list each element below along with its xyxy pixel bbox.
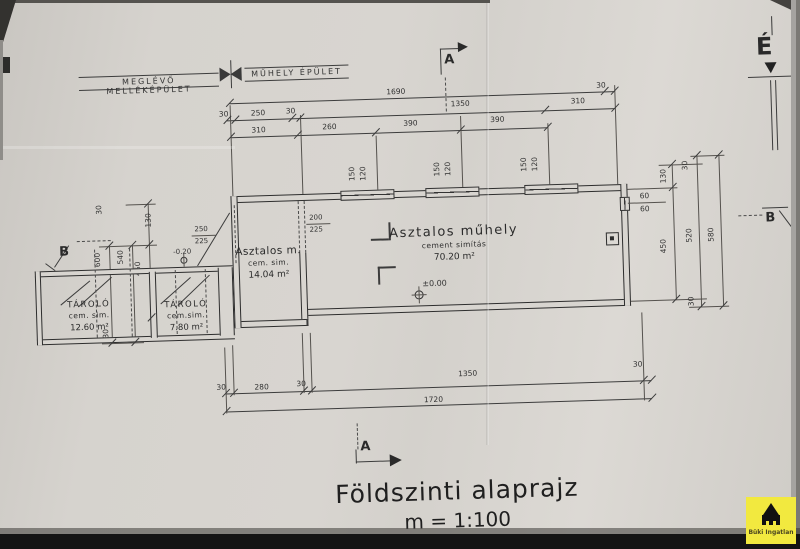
label-workshop-building: MŰHELY ÉPÜLET bbox=[245, 67, 347, 79]
ext-line bbox=[641, 312, 645, 400]
window-dim: 120 bbox=[358, 163, 368, 183]
paper-crease bbox=[0, 146, 235, 149]
level-marker-icon bbox=[412, 294, 427, 296]
break-symbol-icon bbox=[219, 67, 230, 81]
photo-edge bbox=[0, 0, 490, 3]
room-finish: cem.sim. bbox=[149, 310, 223, 321]
dim: 280 bbox=[254, 382, 269, 391]
window-dim: 150 bbox=[347, 164, 357, 184]
north-base-line bbox=[748, 76, 794, 79]
room-area: 12.60 m² bbox=[43, 321, 135, 334]
dim-line bbox=[230, 91, 615, 104]
dim: 1350 bbox=[451, 99, 470, 109]
wall-bottom-workshop bbox=[306, 299, 631, 316]
ext-line bbox=[376, 136, 379, 193]
window-dim: 120 bbox=[443, 159, 453, 179]
window-dim: 150 bbox=[432, 159, 442, 179]
door-dim: 225 bbox=[195, 237, 209, 245]
section-marker-a-top: A bbox=[444, 52, 455, 67]
room-carpenter: Asztalos m. cem. sim. 14.04 m² bbox=[230, 244, 307, 281]
room-area: 70.20 m² bbox=[369, 250, 539, 265]
dim: 540 bbox=[115, 245, 125, 269]
room-workshop: Asztalos műhely cement simítás 70.20 m² bbox=[368, 222, 539, 265]
dim-total-length: 1690 bbox=[386, 87, 405, 97]
window-dim: 120 bbox=[530, 154, 540, 174]
ext-line bbox=[232, 345, 235, 395]
logo-house-arrow-icon bbox=[762, 515, 780, 525]
north-double-line bbox=[770, 80, 773, 150]
ext-line bbox=[230, 105, 234, 197]
room-finish: cem. sim. bbox=[230, 257, 306, 268]
paper-crease bbox=[486, 0, 489, 445]
room-storage1: TÁROLÓ cem. sim. 12.60 m² bbox=[43, 298, 136, 334]
section-marker-b-right: B bbox=[765, 210, 775, 225]
dim: 130 bbox=[658, 164, 668, 188]
window-dim: 150 bbox=[519, 154, 529, 174]
north-letter: É bbox=[756, 32, 773, 61]
dim: 260 bbox=[322, 122, 337, 131]
dim: 310 bbox=[570, 96, 585, 105]
section-b-axis bbox=[77, 240, 111, 242]
ext-line bbox=[614, 85, 618, 184]
dim: 30 bbox=[680, 153, 690, 177]
label-existing-building: MEGLÉVŐ MELLÉKÉPÜLET bbox=[80, 75, 218, 97]
room-name: Asztalos m. bbox=[230, 244, 306, 258]
break-symbol-icon bbox=[230, 67, 241, 81]
dim: 250 bbox=[251, 108, 266, 117]
dim: 130 bbox=[143, 208, 153, 232]
drawing-title: Földszinti alaprajz bbox=[316, 472, 597, 510]
dim-line bbox=[231, 127, 548, 138]
window bbox=[340, 189, 394, 201]
dim: 30 bbox=[633, 359, 643, 368]
logo-house-arrow-icon bbox=[766, 521, 769, 525]
ext-line bbox=[300, 115, 304, 201]
dim-line bbox=[696, 156, 702, 307]
dim: 30 bbox=[686, 289, 696, 313]
section-a-bottom-arrow-icon bbox=[390, 454, 402, 466]
section-marker-a-bottom: A bbox=[360, 439, 371, 454]
section-b-right-line bbox=[762, 207, 788, 209]
room-finish: cem. sim. bbox=[43, 309, 135, 321]
dim: 580 bbox=[706, 223, 716, 247]
interior-step bbox=[378, 267, 380, 285]
door-dim: 250 bbox=[194, 225, 208, 233]
dim: 30 bbox=[94, 198, 104, 222]
watermark-logo: Büki Ingatlan bbox=[746, 497, 796, 544]
photo-mark bbox=[3, 57, 10, 73]
ext-line bbox=[310, 333, 313, 393]
section-b-right-arrow-icon bbox=[779, 210, 792, 227]
room-storage2: TÁROLÓ cem.sim. 7.80 m² bbox=[149, 299, 224, 334]
window bbox=[524, 183, 578, 195]
dim: 520 bbox=[684, 223, 694, 247]
level-label: ±0.00 bbox=[422, 279, 447, 289]
dim-total-length: 1720 bbox=[424, 395, 443, 405]
room-area: 7.80 m² bbox=[149, 322, 223, 334]
dim-tie bbox=[126, 204, 156, 206]
ext-line bbox=[547, 123, 550, 186]
logo-text: Büki Ingatlan bbox=[746, 529, 796, 536]
photo-edge bbox=[0, 534, 800, 549]
north-arrow-icon bbox=[765, 62, 777, 73]
section-marker-b-left: B bbox=[59, 244, 69, 259]
level-label: -0.20 bbox=[173, 248, 191, 257]
dim-tie bbox=[631, 298, 707, 302]
dim: 30 bbox=[219, 109, 229, 118]
dim: 450 bbox=[658, 234, 668, 258]
photo-edge bbox=[796, 0, 800, 549]
dim: 1350 bbox=[458, 369, 477, 379]
logo-house-arrow-icon bbox=[773, 521, 776, 525]
dim: 390 bbox=[403, 118, 418, 127]
section-a-bottom-axis bbox=[357, 423, 359, 449]
section-a-top-axis bbox=[445, 77, 447, 111]
door-dim: 225 bbox=[309, 225, 323, 233]
dim: 310 bbox=[251, 125, 266, 134]
dim-line bbox=[718, 155, 724, 306]
section-a-bottom-line bbox=[356, 460, 394, 462]
section-a-top-arrow-icon bbox=[458, 42, 468, 52]
window-dim: 60 bbox=[639, 191, 649, 200]
dim-line bbox=[226, 380, 652, 395]
window-dim: 60 bbox=[640, 204, 650, 213]
dim-wall: 30 bbox=[596, 80, 606, 89]
north-double-line bbox=[775, 80, 778, 150]
dim: 390 bbox=[490, 115, 505, 124]
room-area: 14.04 m² bbox=[231, 269, 307, 281]
door-dim: 200 bbox=[309, 213, 323, 221]
interior-step bbox=[378, 266, 396, 268]
logo-house-arrow-icon bbox=[763, 503, 779, 515]
ext-line bbox=[224, 348, 227, 414]
section-b-axis bbox=[738, 215, 762, 217]
annex-wall-left bbox=[35, 271, 43, 345]
drawing-sheet: MEGLÉVŐ MELLÉKÉPÜLET MŰHELY ÉPÜLET A É 1… bbox=[0, 0, 800, 549]
window bbox=[425, 186, 479, 198]
section-a-top-line bbox=[440, 49, 442, 75]
wall-bottom-room bbox=[234, 319, 308, 328]
photographed-floor-plan: MEGLÉVŐ MELLÉKÉPÜLET MŰHELY ÉPÜLET A É 1… bbox=[0, 0, 800, 549]
chimney-flue bbox=[610, 236, 614, 240]
